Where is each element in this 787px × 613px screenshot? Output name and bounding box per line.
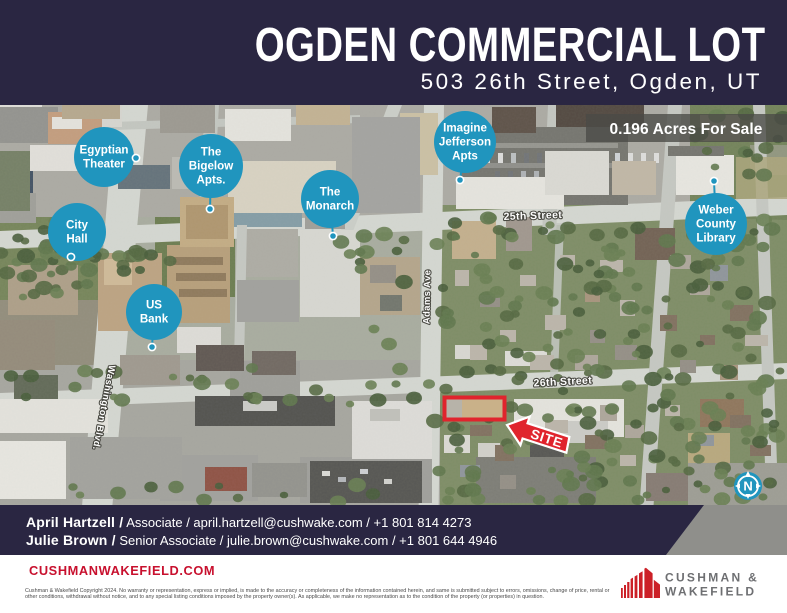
svg-text:WeberCountyLibrary: WeberCountyLibrary bbox=[696, 204, 736, 245]
svg-text:Adams Ave: Adams Ave bbox=[422, 270, 434, 325]
svg-text:N: N bbox=[743, 479, 752, 494]
svg-text:WAKEFIELD: WAKEFIELD bbox=[665, 585, 756, 599]
svg-text:EgyptianTheater: EgyptianTheater bbox=[80, 144, 129, 171]
svg-text:CUSHMAN &: CUSHMAN & bbox=[665, 571, 759, 585]
svg-text:0.196 Acres For Sale: 0.196 Acres For Sale bbox=[609, 121, 762, 138]
svg-text:25th Street: 25th Street bbox=[503, 209, 562, 223]
svg-text:CityHall: CityHall bbox=[66, 219, 88, 246]
